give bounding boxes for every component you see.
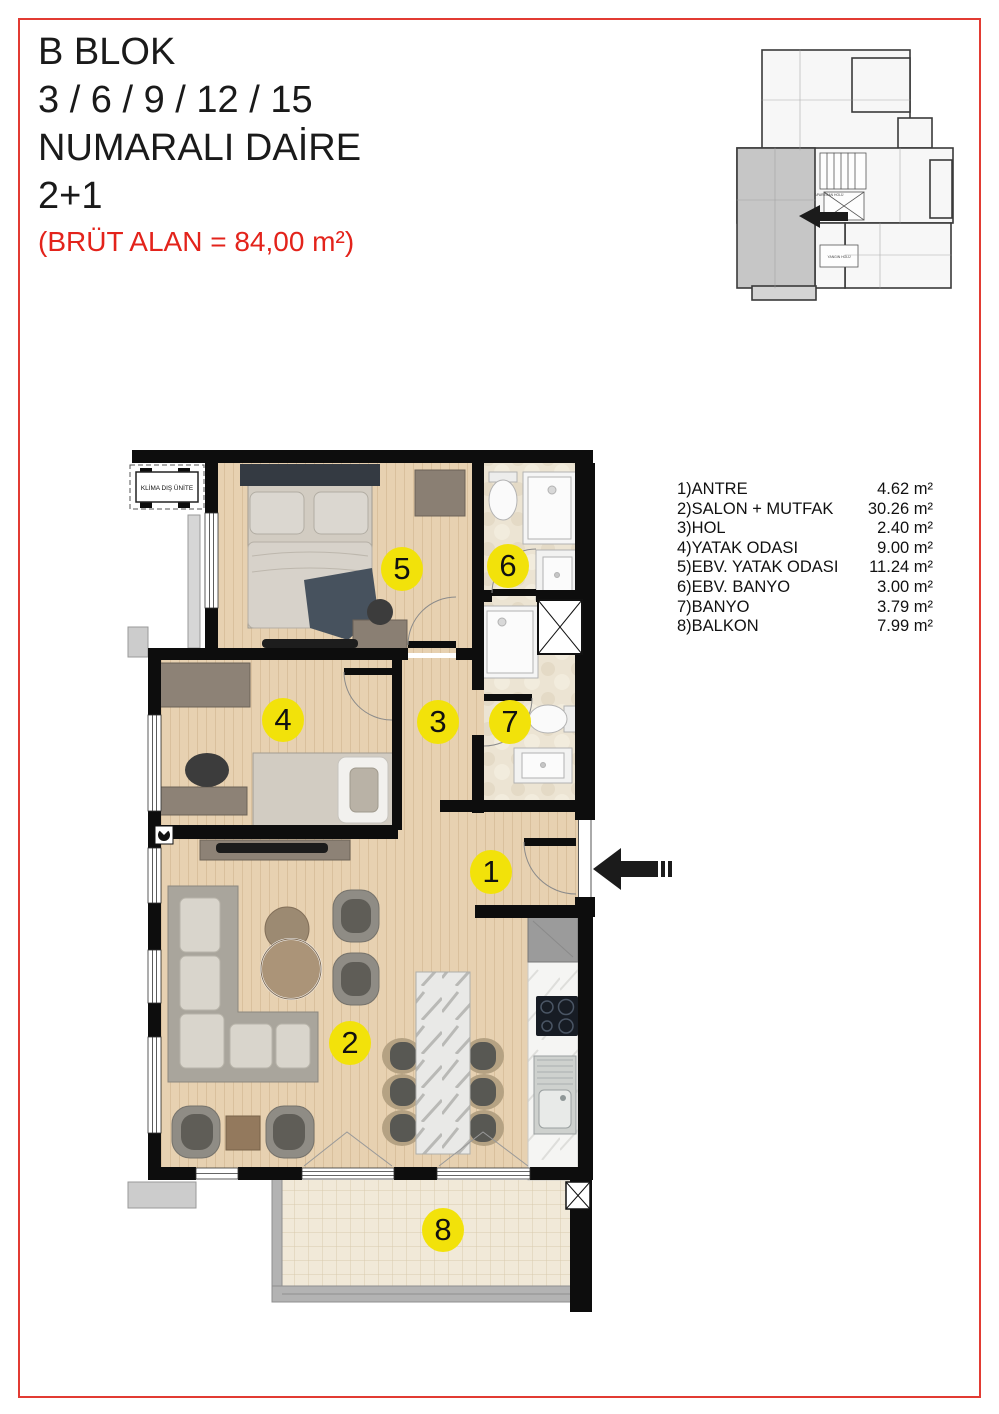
wardrobe-room5 bbox=[415, 470, 465, 516]
bed-single-room4 bbox=[253, 753, 393, 827]
kitchen-sink bbox=[534, 1056, 576, 1134]
plan-drawing: APARTMAN HOLÜ YANGIN HOLÜ bbox=[0, 0, 999, 1414]
klima-label: KLİMA DIŞ ÜNİTE bbox=[141, 483, 193, 492]
tv-console-room4 bbox=[200, 840, 350, 860]
toilet-room7 bbox=[529, 705, 576, 733]
shower-room7 bbox=[482, 606, 538, 678]
dining-table bbox=[416, 972, 470, 1154]
tv-room5 bbox=[262, 639, 358, 648]
entrance-arrow bbox=[593, 848, 672, 890]
window-room5 bbox=[205, 513, 218, 608]
key-plan-yangin-holu-label: YANGIN HOLÜ bbox=[827, 255, 851, 259]
wardrobe-room4 bbox=[160, 663, 250, 707]
shaft-balcony bbox=[566, 1182, 590, 1209]
sink-room7 bbox=[514, 748, 572, 783]
window-room4 bbox=[148, 715, 161, 811]
bed-double-room5 bbox=[240, 464, 380, 640]
key-plan: APARTMAN HOLÜ YANGIN HOLÜ bbox=[737, 50, 953, 300]
klima-outdoor-unit: KLİMA DIŞ ÜNİTE bbox=[130, 465, 204, 509]
bed-headboard bbox=[240, 464, 380, 486]
shower-room6 bbox=[523, 472, 576, 544]
toilet-room6 bbox=[489, 472, 517, 520]
kitchen-counter bbox=[528, 916, 578, 1180]
key-plan-apartman-holu-label: APARTMAN HOLÜ bbox=[815, 193, 844, 197]
floor-balcony bbox=[282, 1180, 570, 1288]
key-plan-right-unit bbox=[845, 223, 951, 288]
windows-living-left bbox=[148, 848, 161, 1133]
floor-plan-page: B BLOK 3 / 6 / 9 / 12 / 15 NUMARALI DAİR… bbox=[0, 0, 999, 1414]
shaft-bathrooms bbox=[538, 600, 582, 654]
detector-icon bbox=[155, 826, 173, 844]
cooktop bbox=[536, 996, 578, 1036]
